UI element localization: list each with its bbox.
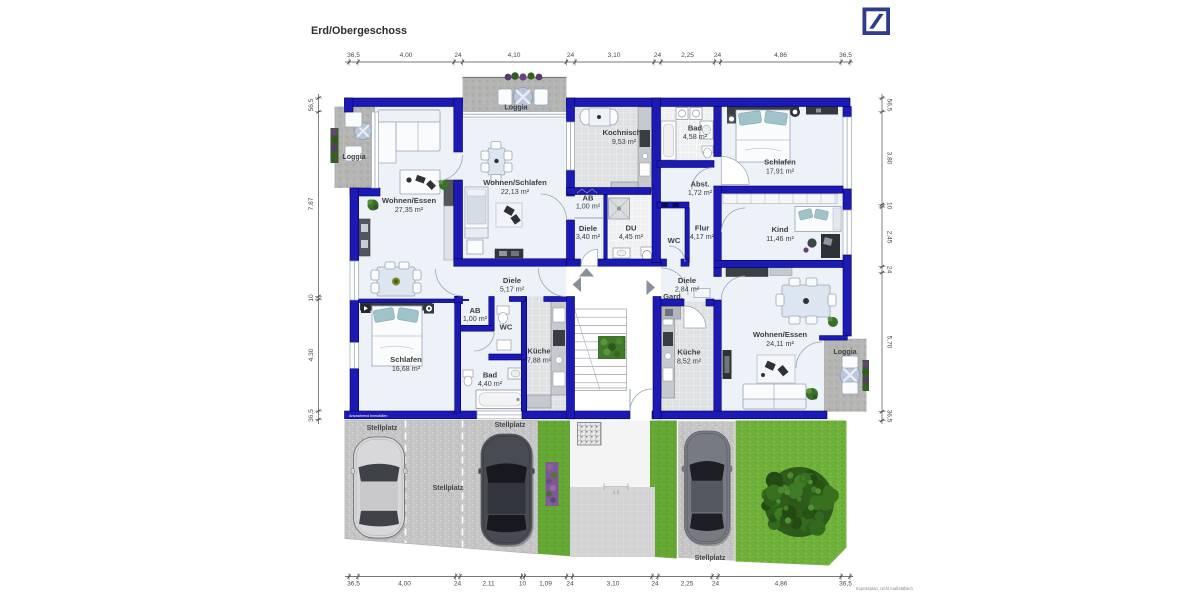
- svg-text:1,72 m²: 1,72 m²: [688, 188, 713, 197]
- svg-text:Erd/Obergeschoss: Erd/Obergeschoss: [311, 25, 407, 37]
- svg-text:24: 24: [654, 52, 662, 59]
- svg-text:Wohnen/Essen: Wohnen/Essen: [382, 196, 437, 205]
- svg-text:4,17 m²: 4,17 m²: [690, 232, 715, 241]
- svg-text:Stellplatz: Stellplatz: [367, 425, 398, 432]
- svg-text:Stellplatz: Stellplatz: [695, 555, 726, 562]
- svg-text:24: 24: [454, 52, 462, 59]
- svg-text:24: 24: [714, 52, 722, 59]
- svg-text:10: 10: [886, 202, 893, 210]
- svg-text:3,80: 3,80: [886, 152, 893, 165]
- svg-text:3,10: 3,10: [607, 581, 620, 588]
- svg-text:4,58 m²: 4,58 m²: [683, 132, 708, 141]
- svg-text:36,5: 36,5: [308, 409, 315, 422]
- svg-text:WC: WC: [500, 323, 513, 332]
- svg-text:Loggia: Loggia: [504, 104, 527, 112]
- svg-text:4,40 m²: 4,40 m²: [478, 379, 503, 388]
- svg-text:Schlafen: Schlafen: [390, 355, 422, 364]
- svg-text:1,00 m²: 1,00 m²: [463, 314, 488, 323]
- svg-text:17,91 m²: 17,91 m²: [766, 167, 795, 176]
- svg-text:36,5: 36,5: [347, 52, 360, 59]
- svg-text:3,10: 3,10: [608, 52, 621, 59]
- svg-text:4,86: 4,86: [775, 581, 788, 588]
- svg-text:Stellplatz: Stellplatz: [433, 485, 464, 492]
- svg-text:Kind: Kind: [772, 225, 789, 234]
- svg-text:5,70: 5,70: [886, 336, 893, 349]
- svg-text:Wohnen/Schlafen: Wohnen/Schlafen: [483, 178, 547, 187]
- svg-text:36,5: 36,5: [886, 410, 893, 423]
- svg-text:Wohnen/Essen: Wohnen/Essen: [753, 330, 808, 339]
- svg-text:36,5: 36,5: [839, 581, 852, 588]
- svg-text:2,25: 2,25: [681, 52, 694, 59]
- svg-text:24: 24: [454, 581, 462, 588]
- svg-text:4,10: 4,10: [508, 52, 521, 59]
- svg-text:Küche: Küche: [527, 347, 550, 356]
- svg-text:Loggia: Loggia: [342, 153, 365, 161]
- svg-text:36,5: 36,5: [347, 581, 360, 588]
- svg-text:Kochnische: Kochnische: [602, 128, 645, 137]
- svg-text:Loggia: Loggia: [833, 348, 856, 356]
- svg-text:36,5: 36,5: [839, 52, 852, 59]
- svg-text:2,25: 2,25: [681, 581, 694, 588]
- svg-text:4,45 m²: 4,45 m²: [619, 232, 644, 241]
- svg-text:3,40 m²: 3,40 m²: [576, 232, 601, 241]
- svg-text:Exposéplan, nicht maßstäblich: Exposéplan, nicht maßstäblich: [856, 586, 913, 591]
- svg-text:2,5: 2,5: [613, 490, 620, 495]
- svg-text:24,11 m²: 24,11 m²: [766, 339, 794, 348]
- svg-text:10: 10: [519, 581, 527, 588]
- svg-text:9,53 m²: 9,53 m²: [612, 137, 637, 146]
- svg-text:Answahrend Immobilien: Answahrend Immobilien: [349, 414, 387, 418]
- svg-text:11,46 m²: 11,46 m²: [766, 234, 794, 243]
- svg-text:7,88 m²: 7,88 m²: [527, 356, 552, 365]
- svg-text:Küche: Küche: [677, 348, 700, 357]
- svg-text:4,00: 4,00: [400, 52, 413, 59]
- svg-text:16,68 m²: 16,68 m²: [392, 364, 421, 373]
- svg-text:Gard.: Gard.: [663, 292, 683, 301]
- svg-text:2,11: 2,11: [482, 581, 495, 588]
- svg-text:2,45: 2,45: [886, 231, 893, 244]
- svg-text:56,5: 56,5: [308, 98, 315, 111]
- svg-text:24: 24: [567, 52, 575, 59]
- svg-text:Schlafen: Schlafen: [764, 158, 796, 167]
- svg-text:10: 10: [308, 294, 315, 302]
- svg-text:1,09: 1,09: [539, 581, 552, 588]
- svg-text:WC: WC: [668, 236, 681, 245]
- svg-text:7,87: 7,87: [308, 197, 315, 210]
- svg-text:56,5: 56,5: [886, 99, 893, 112]
- svg-text:Stellplatz: Stellplatz: [495, 422, 526, 429]
- svg-text:24: 24: [886, 266, 893, 274]
- svg-text:4,86: 4,86: [774, 52, 787, 59]
- svg-text:22,13 m²: 22,13 m²: [501, 187, 530, 196]
- svg-text:27,35 m²: 27,35 m²: [395, 205, 424, 214]
- svg-text:4,30: 4,30: [308, 348, 315, 361]
- svg-text:5,17 m²: 5,17 m²: [500, 285, 525, 294]
- svg-text:8,52 m²: 8,52 m²: [677, 357, 702, 366]
- svg-text:4,00: 4,00: [398, 581, 411, 588]
- svg-text:1,00 m²: 1,00 m²: [576, 202, 601, 211]
- svg-text:24: 24: [566, 581, 574, 588]
- svg-text:24: 24: [651, 581, 659, 588]
- svg-text:24: 24: [712, 581, 720, 588]
